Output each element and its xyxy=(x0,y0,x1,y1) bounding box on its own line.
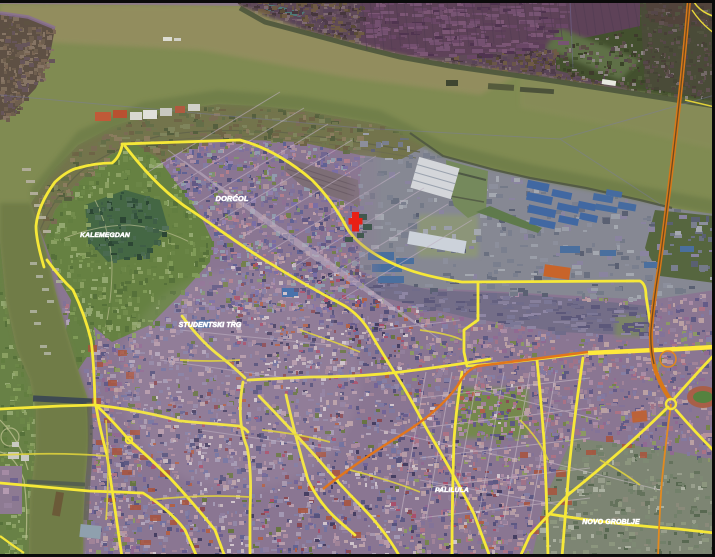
svg-text:KALEMEGDAN: KALEMEGDAN xyxy=(80,232,131,239)
svg-text:PALILULA: PALILULA xyxy=(435,487,469,494)
svg-text:STUDENTSKI TRG: STUDENTSKI TRG xyxy=(179,322,242,329)
svg-text:DORĆOL: DORĆOL xyxy=(215,194,248,203)
svg-text:NOVO GROBLJE: NOVO GROBLJE xyxy=(582,519,640,526)
